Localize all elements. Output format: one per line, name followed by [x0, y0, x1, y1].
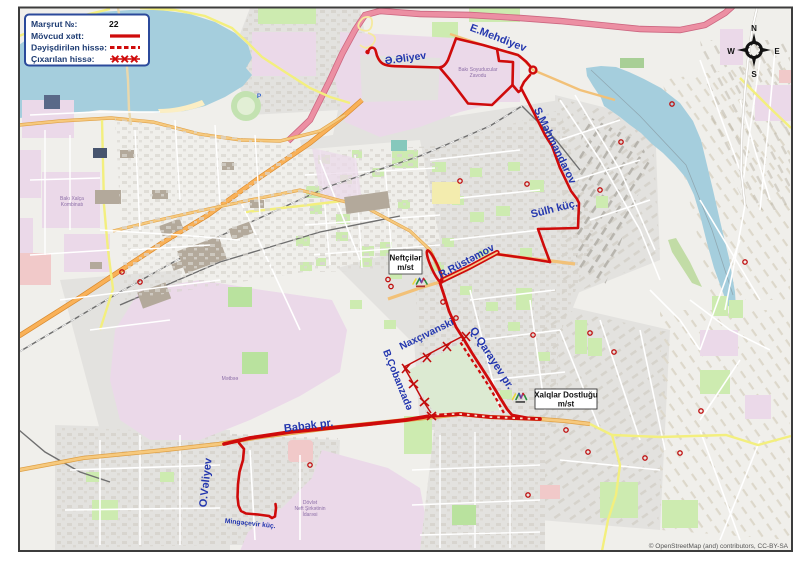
svg-text:P: P — [257, 93, 262, 100]
svg-text:m/st: m/st — [558, 400, 575, 409]
svg-text:W: W — [727, 47, 735, 56]
svg-text:Çıxarılan hissə:: Çıxarılan hissə: — [31, 54, 95, 64]
svg-text:Mətbəə: Mətbəə — [222, 376, 239, 382]
svg-text:Zavodu: Zavodu — [470, 73, 487, 79]
svg-text:22: 22 — [109, 19, 119, 29]
svg-text:S: S — [751, 70, 757, 79]
svg-text:Dəyişdirilən hissə:: Dəyişdirilən hissə: — [31, 43, 107, 53]
svg-text:Kombinatı: Kombinatı — [61, 202, 84, 208]
svg-text:Marşrut №:: Marşrut №: — [31, 19, 77, 29]
svg-text:Neftçilər: Neftçilər — [389, 254, 421, 263]
svg-text:© OpenStreetMap (and) contribu: © OpenStreetMap (and) contributors, CC-B… — [649, 542, 789, 550]
svg-text:İdarəsi: İdarəsi — [302, 511, 317, 518]
svg-text:E: E — [774, 47, 780, 56]
svg-text:Mövcud xətt:: Mövcud xətt: — [31, 31, 84, 41]
svg-text:N: N — [751, 24, 757, 33]
svg-text:m/st: m/st — [397, 263, 414, 272]
svg-text:Xalqlar Dostluğu: Xalqlar Dostluğu — [534, 391, 598, 400]
